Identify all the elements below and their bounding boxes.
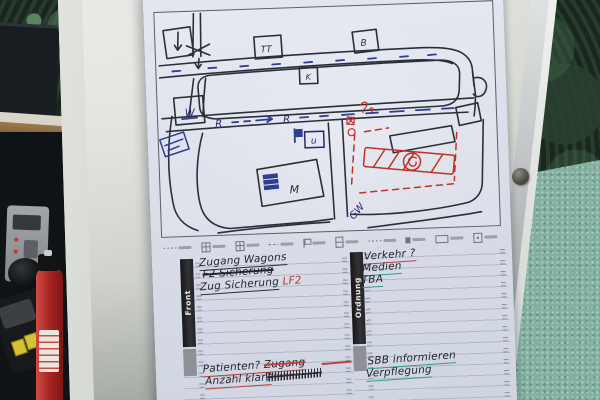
handwritten-note: TBA <box>361 274 383 288</box>
charger-button <box>24 240 39 258</box>
legend-label <box>178 246 191 249</box>
legend-item <box>473 232 497 243</box>
unit-bar <box>263 179 278 185</box>
legend-item <box>235 240 259 251</box>
unit-bar <box>264 184 279 190</box>
charger-slot <box>12 214 41 230</box>
filled-square-icon <box>406 237 411 243</box>
down-arrow <box>195 58 201 68</box>
w-label: W <box>185 108 196 119</box>
legend-label <box>450 237 463 240</box>
m-label: M <box>289 183 299 196</box>
dash-square-icon <box>269 244 279 246</box>
legend-label <box>281 243 294 246</box>
charger-led <box>14 238 18 242</box>
legend-item <box>368 239 396 242</box>
tt-label: TT <box>261 45 274 55</box>
stacked-rect-icon <box>335 237 343 248</box>
wide-rect-icon <box>435 234 448 242</box>
grid-icon <box>235 241 244 251</box>
handwritten-note: Anzahl klar? <box>205 372 272 389</box>
red-circle-symbol <box>348 129 355 136</box>
front-section-bar: Front <box>180 259 196 347</box>
blue-letters: u W R R GW <box>185 102 369 228</box>
unit-bar <box>263 173 278 179</box>
legend-item <box>406 236 426 243</box>
tactical-unit-symbol <box>263 173 280 190</box>
legend-item <box>335 236 358 248</box>
flag-pole-icon <box>303 239 310 248</box>
board-knob <box>512 168 529 185</box>
dots-line-icon <box>164 247 177 249</box>
legend-label <box>246 244 259 247</box>
red-dash-left <box>350 134 357 186</box>
legend-label <box>312 241 325 244</box>
railway-crossbuck <box>186 44 209 56</box>
legend-item <box>201 241 225 252</box>
red-train <box>363 147 454 174</box>
extinguisher-label <box>39 330 59 372</box>
boxed-letter-icon <box>473 232 482 242</box>
sketch-map-frame: TT B K M u W R <box>153 0 501 238</box>
blue-vehicle-symbol <box>160 132 190 157</box>
grid-icon <box>201 242 210 252</box>
gw-label: GW <box>348 201 368 222</box>
extinguisher-pin <box>44 250 52 256</box>
second-road-upper <box>162 98 474 119</box>
b-label: B <box>360 39 367 49</box>
photo-scene: TT B K M u W R <box>0 0 600 400</box>
legend-label <box>413 238 426 241</box>
legend-label <box>383 239 396 242</box>
sketch-map: TT B K M u W R <box>154 1 500 237</box>
legend-item <box>303 238 325 248</box>
legend-label <box>484 235 497 238</box>
charger-led <box>14 250 18 254</box>
flag-icon <box>294 129 302 137</box>
situation-sheet: TT B K M u W R <box>143 0 518 400</box>
route-r-right: R <box>283 114 290 125</box>
front-section-label: Front <box>183 290 193 316</box>
legend-item <box>269 243 294 246</box>
legend-label <box>345 240 358 243</box>
blue-pen-marks <box>157 54 455 157</box>
u-label: u <box>311 136 317 146</box>
legend-item <box>164 246 192 249</box>
center-divider-lines <box>328 120 347 218</box>
handwritten-note: Verpflegung <box>366 364 433 381</box>
route-r-left: R <box>215 119 222 130</box>
notes-column-ordnung: Ordnung Verkehr ? Medien TBA SBB informi… <box>350 243 513 400</box>
black-ink-roads <box>157 4 491 235</box>
arrow-box-arrow <box>174 32 182 50</box>
k-label: K <box>306 73 312 82</box>
notes-column-front: Front Zugang Wagons F2 Sicherung Zug Sic… <box>180 251 356 400</box>
fire-extinguisher <box>36 268 63 400</box>
dots-line-icon <box>368 240 381 242</box>
extinguisher-handle <box>38 254 59 271</box>
red-dash-bottom <box>360 184 455 193</box>
legend-label <box>212 245 225 248</box>
tool-grip <box>0 298 37 329</box>
top-right-box <box>456 103 482 126</box>
platform-outline <box>389 126 455 153</box>
red-dash-top <box>364 128 388 132</box>
legend-item <box>435 234 463 243</box>
note-suffix-red: LF2 <box>282 274 302 287</box>
front-section-bar-gray <box>183 349 197 376</box>
